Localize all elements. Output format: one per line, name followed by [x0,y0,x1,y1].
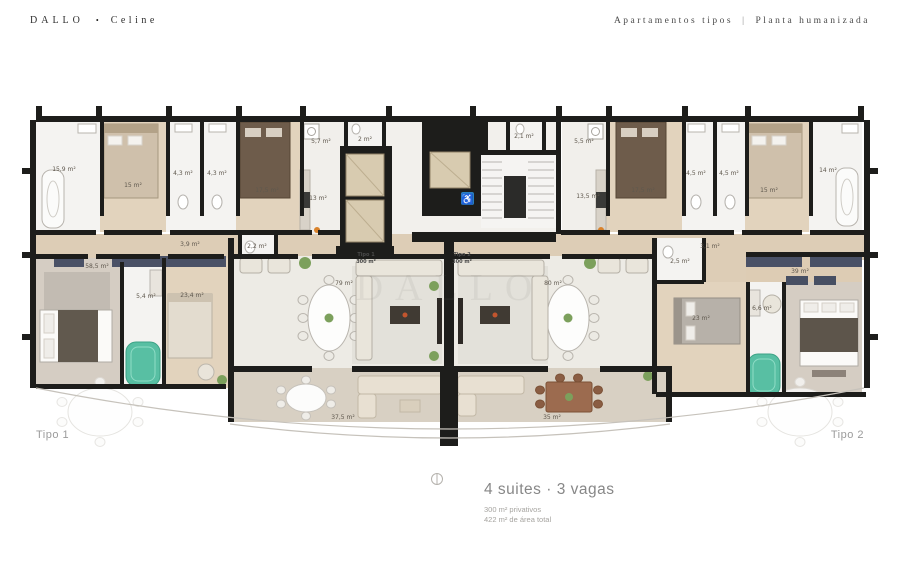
terrace1-sofa [358,376,442,394]
armchair-living2 [626,258,648,273]
wall [606,106,612,118]
centerpiece-plant [565,393,573,401]
wardrobe [746,256,802,267]
wall [22,252,30,258]
washer1 [304,124,319,139]
area-label-master2: 39 m² [791,268,809,275]
terrace1-ottoman [400,400,420,412]
wall [166,120,170,216]
centerpiece-plant [325,314,334,323]
sink6 [842,124,858,133]
wall [476,150,560,155]
wall [870,334,878,340]
wall [742,230,802,235]
armchair-suite4 [198,364,214,380]
wall [96,106,102,118]
centerpiece-plant [564,314,573,323]
wall [618,230,734,235]
pillow [642,128,658,137]
pillow [686,302,695,316]
area-label-kitchen2: 13,5 m² [576,193,600,200]
wall [36,254,88,259]
area-label-suite2r: 15 m² [760,187,778,194]
wall [120,262,124,388]
plant [299,257,311,269]
armchair-living1 [268,258,290,273]
sink5 [722,124,739,132]
wall [386,106,392,118]
area-label-bath2: 4,3 m² [173,170,193,177]
wall [810,230,864,235]
area-label-lavabo1: 2,2 m² [247,243,267,250]
wall [600,366,666,372]
area-label-bath3: 4,3 m² [207,170,227,177]
toilet [178,195,188,209]
pillow [266,128,282,137]
wall [200,120,204,216]
terrace2-sofa-arm [458,394,476,416]
toilet [212,195,222,209]
pillow [804,303,818,312]
wall [745,120,749,216]
sink2 [175,124,192,132]
footer: 4 suites · 3 vagas 300 m² privativos 422… [484,481,614,525]
closet-island [786,276,808,285]
wall [228,366,234,422]
bed-suite4 [168,294,212,358]
wall [344,120,348,150]
wheelchair-glyph: ♿ [461,193,473,206]
wall [36,116,864,122]
bathtub1 [42,170,64,228]
area-label-terrace2: 35 m² [543,414,561,421]
wall [870,168,878,174]
wall [22,334,30,340]
area-label-suite3: 17,5 m² [255,187,279,194]
area-label-master1: 58,5 m² [85,263,109,270]
unit2-corner-label: Tipo 2 [831,429,864,441]
unit1-core-name: Tipo 1 [357,252,375,258]
area-label-suite2: 15 m² [124,182,142,189]
wall [858,106,864,118]
wall [656,392,866,397]
unit2-core-name: Tipo 2 [453,252,471,258]
wall [168,254,224,259]
wall [234,254,298,259]
bed-bench [812,370,846,377]
wall [162,258,166,388]
terrace2-sofa [458,376,524,394]
area-label-living2: 80 m² [544,280,562,287]
wall [236,120,240,216]
wall [870,252,878,258]
wall [606,120,610,216]
north-compass-icon [432,473,443,485]
wall [238,232,242,258]
area-label-suite4r: 23 m² [692,315,710,322]
wall [22,168,30,174]
wall [456,366,548,372]
area-label-kitchen1: 13 m² [309,195,327,202]
wall [300,120,304,216]
pillow [686,326,695,340]
toilet [691,195,701,209]
toilet-lavabo2 [663,246,673,258]
wall [30,120,36,388]
armchair-living1 [240,258,262,273]
area-label-laundry2: 5,5 m² [574,138,594,145]
wall [36,230,96,235]
terrace1-sofa-arm [358,394,376,418]
wall [274,232,278,258]
unit1-corner-label: Tipo 1 [36,429,69,441]
pillow [128,136,142,145]
bathtub2 [836,168,858,226]
wall [96,254,160,259]
wall [234,366,312,372]
watermark: DALLO [356,267,545,309]
pillow [772,136,786,145]
wc1-floor [344,120,386,148]
wardrobe [810,256,862,267]
wall [100,120,104,216]
wall [656,280,704,284]
plant [217,375,227,385]
wall [300,106,306,118]
wall [782,282,786,396]
decor-accent [403,313,408,318]
bed-suite4r-headboard [674,298,682,344]
pillow [621,128,637,137]
floor-plan-page: DALLO•Celine Apartamentos tipos|Planta h… [0,0,900,569]
closet-island [814,276,836,285]
wall [36,106,42,118]
area-label-lavabo2: 2,5 m² [670,258,690,265]
wall [542,120,546,150]
bed-suite2r-headboard [748,124,802,133]
unit2-core-area: 300 m² [452,259,472,265]
pillow [822,303,836,312]
decor-accent [493,313,498,318]
wall [745,106,751,118]
area-label-terrace1: 37,5 m² [331,414,355,421]
washer2 [588,124,603,139]
footer-privative-area: 300 m² privativos [484,505,614,515]
pillow [752,136,766,145]
wall [746,252,866,257]
wall [476,150,481,210]
stair-landing [504,176,526,218]
area-label-masterbath2: 6,6 m² [752,305,772,312]
toilet [725,195,735,209]
unit1-core-area: 300 m² [356,259,376,265]
area-label-hall1: 3,9 m² [180,241,200,248]
area-label-bath6: 14 m² [819,167,837,174]
sink3 [209,124,226,132]
wall [470,106,476,118]
area-label-suite3r: 17,5 m² [631,187,655,194]
terrace1-table [286,384,326,412]
area-label-masterbath1: 5,4 m² [136,293,156,300]
area-label-wc1: 2 m² [358,136,373,143]
pillow [44,339,54,358]
sink4 [688,124,705,132]
wall [746,282,750,396]
wall [682,106,688,118]
wall [166,106,172,118]
pillow [840,303,854,312]
wall [713,120,717,216]
wall [562,254,652,259]
wall [104,230,162,235]
wall [809,120,813,216]
plant [643,371,653,381]
bed-master2-blanket [800,318,858,352]
area-label-laundry1: 5,7 m² [311,138,331,145]
pillow [44,314,54,333]
sink1 [78,124,96,133]
wall [382,120,386,150]
toilet-wc1 [352,124,360,134]
bed-suite2-headboard [104,124,158,133]
plant [429,351,439,361]
wall [561,230,610,235]
area-label-hall2: 3,1 m² [700,243,720,250]
area-label-suite4: 23,4 m² [180,292,204,299]
wall [556,106,562,118]
wall [556,150,561,234]
wall [506,120,510,150]
wall [236,106,242,118]
wall [412,232,556,242]
wall [352,366,444,372]
area-label-bath1: 15,9 m² [52,166,76,173]
pillow [108,136,122,145]
footer-details: 300 m² privativos 422 m² de área total [484,505,614,525]
area-label-wc2: 2,1 m² [514,133,534,140]
wall [682,120,686,216]
wall [228,238,234,388]
area-label-bath4: 4,5 m² [686,170,706,177]
floor-plan-drawing: ♿ [0,0,900,569]
wall [312,254,444,259]
wall [440,366,458,446]
bed-master1-blanket [58,310,98,362]
area-label-living1: 79 m² [335,280,353,287]
footer-total-area: 422 m² de área total [484,515,614,525]
armchair-living2 [598,258,620,273]
wall [318,230,344,235]
wall [36,384,226,389]
footer-title: 4 suites · 3 vagas [484,481,614,499]
pillow [245,128,261,137]
area-label-bath5: 4,5 m² [719,170,739,177]
